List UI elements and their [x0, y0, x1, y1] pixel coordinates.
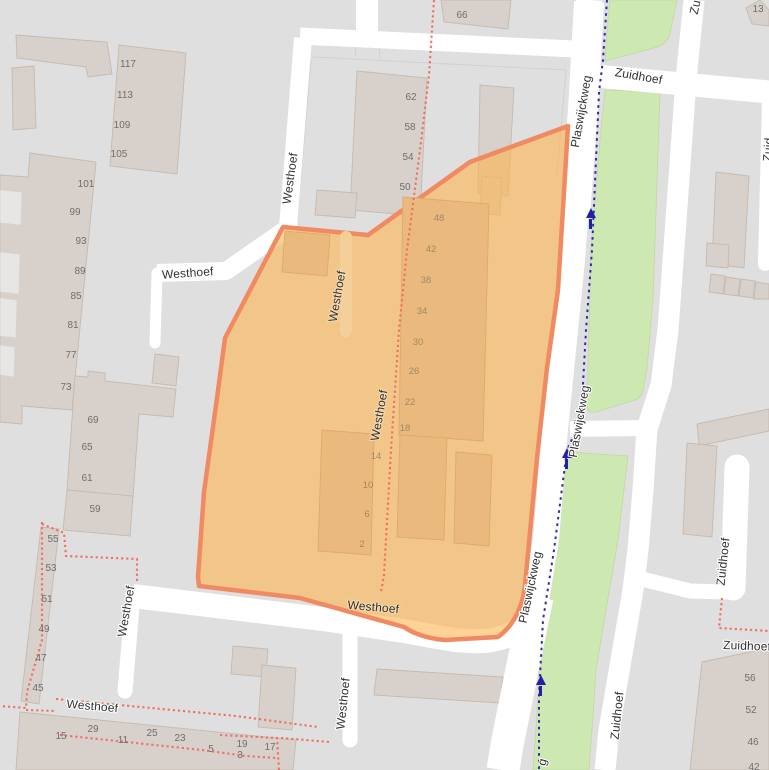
svg-text:19: 19 — [236, 739, 248, 750]
svg-text:Zuidhoef: Zuidhoef — [723, 638, 769, 654]
svg-text:77: 77 — [65, 350, 77, 361]
svg-text:56: 56 — [744, 673, 756, 684]
svg-text:89: 89 — [74, 266, 86, 277]
svg-text:5: 5 — [208, 744, 214, 755]
svg-text:99: 99 — [69, 207, 81, 218]
svg-text:13: 13 — [752, 4, 764, 15]
svg-text:22: 22 — [405, 397, 416, 408]
svg-text:50: 50 — [399, 182, 411, 193]
svg-text:105: 105 — [111, 149, 128, 160]
svg-text:29: 29 — [87, 724, 99, 735]
svg-text:46: 46 — [747, 737, 759, 748]
svg-text:42: 42 — [748, 762, 760, 770]
svg-text:23: 23 — [174, 733, 186, 744]
svg-text:62: 62 — [405, 92, 417, 103]
svg-text:25: 25 — [146, 728, 158, 739]
svg-text:2: 2 — [359, 539, 364, 550]
svg-text:Zuid: Zuid — [760, 137, 769, 162]
svg-text:49: 49 — [38, 624, 50, 635]
svg-text:85: 85 — [70, 291, 82, 302]
svg-text:42: 42 — [426, 244, 437, 255]
svg-text:53: 53 — [45, 563, 57, 574]
svg-text:26: 26 — [409, 366, 420, 377]
svg-text:34: 34 — [417, 306, 428, 317]
svg-text:10: 10 — [363, 480, 374, 491]
svg-text:18: 18 — [400, 423, 411, 434]
svg-text:52: 52 — [745, 705, 757, 716]
svg-text:11: 11 — [118, 735, 129, 746]
svg-text:47: 47 — [35, 653, 47, 664]
svg-text:65: 65 — [81, 442, 93, 453]
svg-text:45: 45 — [32, 683, 44, 694]
svg-text:17: 17 — [264, 742, 276, 753]
svg-text:Zu: Zu — [687, 0, 704, 16]
svg-text:66: 66 — [456, 10, 468, 21]
svg-text:73: 73 — [60, 382, 72, 393]
svg-text:113: 113 — [117, 90, 133, 101]
svg-text:61: 61 — [81, 473, 93, 484]
svg-text:109: 109 — [114, 120, 131, 131]
svg-text:51: 51 — [41, 594, 53, 605]
svg-text:58: 58 — [404, 122, 416, 133]
svg-text:55: 55 — [47, 534, 59, 545]
svg-text:69: 69 — [87, 415, 99, 426]
svg-text:54: 54 — [402, 152, 414, 163]
svg-text:38: 38 — [421, 275, 432, 286]
svg-text:81: 81 — [67, 320, 79, 331]
svg-text:6: 6 — [364, 509, 369, 520]
svg-text:48: 48 — [434, 213, 445, 224]
svg-text:30: 30 — [413, 337, 424, 348]
svg-text:14: 14 — [371, 451, 382, 462]
svg-text:3: 3 — [237, 750, 243, 761]
svg-text:101: 101 — [78, 179, 95, 190]
svg-text:15: 15 — [55, 731, 67, 742]
svg-text:93: 93 — [75, 236, 87, 247]
svg-text:59: 59 — [89, 504, 101, 515]
svg-text:117: 117 — [120, 59, 136, 70]
